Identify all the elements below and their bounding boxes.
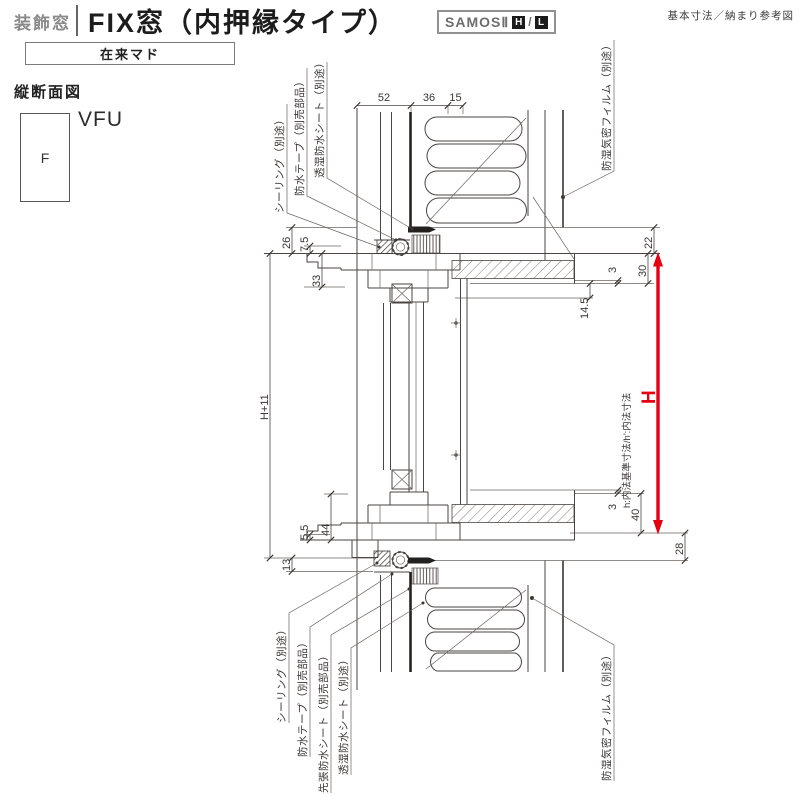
label-vapor-barrier-top: 防湿気密フィルム（別途） (600, 39, 613, 171)
screw-mark-upper (451, 318, 461, 328)
label-waterproof-tape-top: 防水テープ（別売部品） (293, 76, 306, 196)
dim-15: 15 (449, 92, 461, 104)
label-pre-applied-sheet-bottom: 先張防水シート（別売部品） (317, 650, 330, 793)
insulation-batt-top (425, 117, 527, 224)
label-waterproof-tape-bottom: 防水テープ（別売部品） (296, 637, 309, 757)
label-sealing-bottom: シーリング（別途） (275, 624, 288, 723)
dim-13: 13 (281, 559, 293, 571)
dim-3-top: 3 (607, 267, 619, 273)
dim-33: 33 (311, 275, 323, 287)
dim-3-bottom: 3 (607, 504, 619, 510)
dim-5-5: 5.5 (299, 525, 311, 540)
label-vapor-barrier-bottom: 防湿気密フィルム（別途） (600, 649, 613, 781)
dim-52: 52 (378, 92, 390, 104)
screw-bottom (408, 558, 436, 564)
top-wall (357, 108, 574, 690)
catalog-page: 装飾窓 FIX窓（内押縁タイプ） SAMOSⅡ H / L 基本寸法／納まり参考… (0, 0, 800, 800)
dim-h-plus-11: H+11 (259, 394, 271, 420)
backer-rod-bottom (393, 552, 409, 568)
dim-30: 30 (637, 265, 649, 277)
top-dimension-line: 52 36 15 (357, 92, 463, 114)
top-frame-section (307, 227, 575, 304)
interior-trim-top (452, 261, 574, 279)
label-sealing-top: シーリング（別途） (273, 114, 286, 213)
annotation-labels: シーリング（別途） 防水テープ（別売部品） 透湿防水シート（別途） 防湿気密フィ… (273, 39, 613, 793)
annotation-leaders (287, 40, 614, 793)
screw-mark-lower (451, 450, 461, 460)
left-dimensions: 26 7.5 33 H+11 5.5 44 13 (259, 228, 348, 572)
interior-trim-bottom (452, 505, 574, 523)
inner-height-note: h:内法基準寸法/h':内法寸法 (621, 393, 633, 508)
dim-44: 44 (320, 524, 332, 536)
dim-36: 36 (423, 92, 435, 104)
dim-14-5: 14.5 (579, 298, 591, 319)
interior-casing (451, 279, 467, 505)
dim-7-5: 7.5 (299, 237, 311, 252)
dim-28: 28 (674, 543, 686, 555)
height-arrow-label: H (639, 390, 660, 404)
backup-material-top (412, 235, 440, 253)
dim-26: 26 (281, 237, 293, 249)
backup-material-bottom (412, 568, 438, 584)
dim-40: 40 (630, 509, 642, 521)
dim-22: 22 (643, 237, 655, 249)
label-breathable-sheet-top: 透湿防水シート（別途） (313, 57, 326, 178)
bottom-frame-section (300, 470, 575, 584)
backer-rod-top (393, 239, 409, 255)
right-dimensions: 22 30 3 14.5 3 40 28 h:内法基準寸法/h':内法寸法 (579, 228, 686, 561)
glass-setting-block-top (392, 284, 412, 303)
cross-section-drawing: 52 36 15 (0, 0, 800, 800)
insulation-batt-bottom (426, 588, 527, 671)
label-breathable-sheet-bottom: 透湿防水シート（別途） (337, 654, 350, 775)
glass-pane (384, 302, 424, 492)
